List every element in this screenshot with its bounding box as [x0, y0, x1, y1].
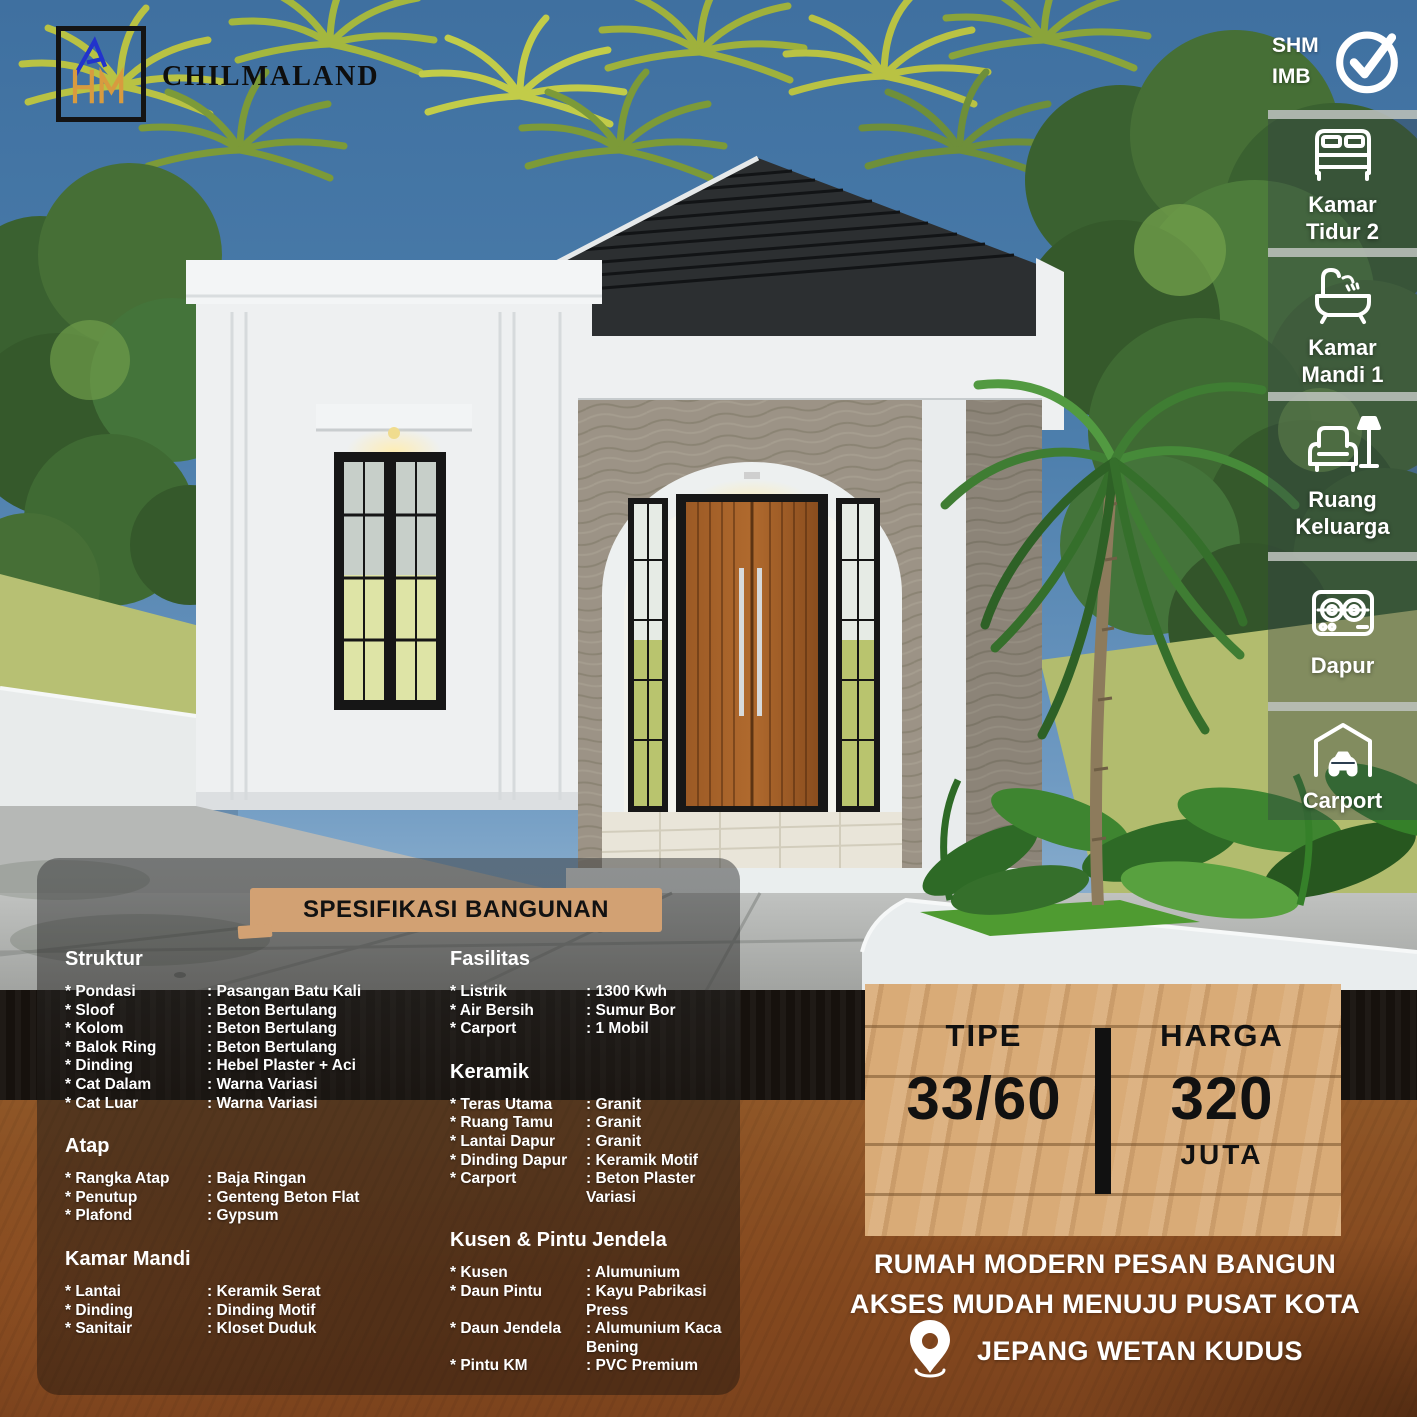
label-line: Dapur: [1311, 652, 1375, 679]
spec-label: * Daun Pintu: [450, 1283, 586, 1320]
sidebar-item-kamar-mandi: Kamar Mandi 1: [1268, 248, 1417, 392]
spec-value: : Beton Bertulang: [207, 1020, 415, 1039]
spec-section-kamar-mandi: Kamar Mandi * Lantai: Keramik Serat* Din…: [65, 1248, 415, 1339]
spec-label: * Kolom: [65, 1020, 207, 1039]
spec-label: * Pondasi: [65, 983, 207, 1002]
location-name: JEPANG WETAN KUDUS: [977, 1336, 1303, 1367]
spec-row: * Cat Luar: Warna Variasi: [65, 1095, 415, 1114]
spec-row: * Daun Jendela: Alumunium Kaca Bening: [450, 1320, 722, 1357]
spec-label: * Pintu KM: [450, 1357, 586, 1376]
spec-label: * Dinding: [65, 1057, 207, 1076]
spec-row: * Balok Ring: Beton Bertulang: [65, 1039, 415, 1058]
spec-value: : Warna Variasi: [207, 1076, 415, 1095]
spec-section-struktur: Struktur * Pondasi: Pasangan Batu Kali* …: [65, 948, 415, 1113]
spec-value: : Kayu Pabrikasi Press: [586, 1283, 722, 1320]
price-value: 320: [1170, 1064, 1273, 1133]
price-unit: JUTA: [1180, 1139, 1263, 1171]
spec-title: SPESIFIKASI BANGUNAN: [303, 896, 609, 924]
spec-value: : Granit: [586, 1114, 722, 1133]
label-line: Tidur 2: [1306, 218, 1379, 245]
sidebar-item-carport: Carport: [1268, 702, 1417, 820]
spec-label: * Sanitair: [65, 1320, 207, 1339]
spec-section-keramik: Keramik * Teras Utama: Granit* Ruang Tam…: [450, 1061, 722, 1208]
spec-row: * Kolom: Beton Bertulang: [65, 1020, 415, 1039]
price-sign: TIPE 33/60 HARGA 320 JUTA: [865, 984, 1341, 1236]
spec-value: : Granit: [586, 1133, 722, 1152]
spec-value: : Sumur Bor: [586, 1002, 722, 1021]
label-line: Kamar: [1306, 191, 1379, 218]
spec-value: : Beton Plaster Variasi: [586, 1170, 722, 1207]
spec-row: * Plafond: Gypsum: [65, 1207, 415, 1226]
spec-label: * Lantai Dapur: [450, 1133, 586, 1152]
spec-section-atap: Atap * Rangka Atap: Baja Ringan* Penutup…: [65, 1135, 415, 1226]
spec-label: * Lantai: [65, 1283, 207, 1302]
spec-label: * Cat Dalam: [65, 1076, 207, 1095]
sofa-lamp-icon: [1305, 414, 1381, 478]
tagline: RUMAH MODERN PESAN BANGUN AKSES MUDAH ME…: [845, 1244, 1365, 1324]
sign-divider: [1095, 1028, 1111, 1194]
spec-value: : Genteng Beton Flat: [207, 1189, 415, 1208]
price-block: HARGA 320 JUTA: [1103, 984, 1341, 1236]
label-line: Carport: [1303, 787, 1382, 814]
label-line: Ruang: [1295, 486, 1389, 513]
spec-value: : Beton Bertulang: [207, 1039, 415, 1058]
label-line: Mandi 1: [1302, 361, 1384, 388]
spec-row: * Sloof: Beton Bertulang: [65, 1002, 415, 1021]
spec-label: * Sloof: [65, 1002, 207, 1021]
spec-value: : Hebel Plaster + Aci: [207, 1057, 415, 1076]
spec-value: : Dinding Motif: [207, 1302, 415, 1321]
spec-value: : Kloset Duduk: [207, 1320, 415, 1339]
type-value: 33/60: [906, 1064, 1061, 1133]
spec-column-right: Fasilitas * Listrik: 1300 Kwh* Air Bersi…: [450, 942, 722, 1376]
left-wing: [186, 260, 602, 810]
spec-value: : Beton Bertulang: [207, 1002, 415, 1021]
label-line: Keluarga: [1295, 513, 1389, 540]
spec-row: * Sanitair: Kloset Duduk: [65, 1320, 415, 1339]
brand-header: CHILMALAND: [56, 26, 380, 122]
spec-value: : Gypsum: [207, 1207, 415, 1226]
spec-label: * Air Bersih: [450, 1002, 586, 1021]
spec-value: : Pasangan Batu Kali: [207, 983, 415, 1002]
pin-icon: [907, 1318, 953, 1385]
check-icon: [1329, 22, 1405, 103]
spec-value: : Keramik Motif: [586, 1152, 722, 1171]
spec-row: * Ruang Tamu: Granit: [450, 1114, 722, 1133]
spec-label: * Carport: [450, 1020, 586, 1039]
spec-row: * Carport: 1 Mobil: [450, 1020, 722, 1039]
cert-badge: SHM IMB: [1272, 22, 1405, 103]
spec-row: * Carport: Beton Plaster Variasi: [450, 1170, 722, 1207]
carport-icon: [1308, 717, 1378, 779]
spec-label: * Rangka Atap: [65, 1170, 207, 1189]
entrance: [566, 336, 1052, 906]
spec-label: * Dinding Dapur: [450, 1152, 586, 1171]
sidelight-left: [628, 498, 668, 812]
brand-name: CHILMALAND: [162, 61, 380, 93]
spec-row: * Kusen: Alumunium: [450, 1264, 722, 1283]
feature-sidebar: Kamar Tidur 2 Kamar Mandi 1: [1268, 110, 1417, 820]
spec-value: : Baja Ringan: [207, 1170, 415, 1189]
spec-section-heading: Fasilitas: [450, 948, 722, 971]
spec-value: : Alumunium Kaca Bening: [586, 1320, 722, 1357]
spec-row: * Listrik: 1300 Kwh: [450, 983, 722, 1002]
cert-line: IMB: [1272, 61, 1319, 92]
door-handle: [757, 568, 762, 716]
location-row: JEPANG WETAN KUDUS: [845, 1318, 1365, 1385]
spec-value: : Granit: [586, 1096, 722, 1115]
cert-line: SHM: [1272, 30, 1319, 61]
spec-value: : Alumunium: [586, 1264, 722, 1283]
bed-icon: [1309, 123, 1377, 183]
tagline-line1: RUMAH MODERN PESAN BANGUN: [845, 1244, 1365, 1284]
spec-label: * Plafond: [65, 1207, 207, 1226]
sidebar-item-label: Ruang Keluarga: [1295, 486, 1389, 540]
sidebar-item-ruang-keluarga: Ruang Keluarga: [1268, 392, 1417, 552]
sidebar-item-kamar-tidur: Kamar Tidur 2: [1268, 110, 1417, 248]
stove-icon: [1308, 584, 1378, 644]
spec-row: * Lantai: Keramik Serat: [65, 1283, 415, 1302]
spec-row: * Air Bersih: Sumur Bor: [450, 1002, 722, 1021]
spec-row: * Lantai Dapur: Granit: [450, 1133, 722, 1152]
spec-row: * Teras Utama: Granit: [450, 1096, 722, 1115]
sidebar-item-label: Dapur: [1311, 652, 1375, 679]
spec-label: * Penutup: [65, 1189, 207, 1208]
spec-section-heading: Kamar Mandi: [65, 1248, 415, 1271]
type-label: TIPE: [946, 1018, 1023, 1054]
sidelight-right: [836, 498, 880, 812]
spec-section-fasilitas: Fasilitas * Listrik: 1300 Kwh* Air Bersi…: [450, 948, 722, 1039]
spec-row: * Pondasi: Pasangan Batu Kali: [65, 983, 415, 1002]
sidebar-item-dapur: Dapur: [1268, 552, 1417, 702]
spec-label: * Cat Luar: [65, 1095, 207, 1114]
property-flyer: CHILMALAND SHM IMB Kamar: [0, 0, 1417, 1417]
spec-banner: SPESIFIKASI BANGUNAN: [250, 888, 662, 932]
sidebar-item-label: Kamar Tidur 2: [1306, 191, 1379, 245]
spec-panel: SPESIFIKASI BANGUNAN Struktur * Pondasi:…: [37, 858, 740, 1395]
spec-label: * Dinding: [65, 1302, 207, 1321]
spec-row: * Penutup: Genteng Beton Flat: [65, 1189, 415, 1208]
spec-value: : Warna Variasi: [207, 1095, 415, 1114]
chilmaland-monogram-icon: [56, 26, 146, 122]
window-ledge-lamp: [316, 404, 472, 430]
spec-value: : 1 Mobil: [586, 1020, 722, 1039]
spec-label: * Balok Ring: [65, 1039, 207, 1058]
spec-row: * Dinding Dapur: Keramik Motif: [450, 1152, 722, 1171]
spec-value: : 1300 Kwh: [586, 983, 722, 1002]
spec-section-heading: Keramik: [450, 1061, 722, 1084]
spec-row: * Dinding: Dinding Motif: [65, 1302, 415, 1321]
spec-section-kusen: Kusen & Pintu Jendela * Kusen: Alumunium…: [450, 1229, 722, 1376]
spec-column-left: Struktur * Pondasi: Pasangan Batu Kali* …: [65, 942, 415, 1376]
spec-row: * Rangka Atap: Baja Ringan: [65, 1170, 415, 1189]
spec-value: : PVC Premium: [586, 1357, 722, 1376]
spec-label: * Daun Jendela: [450, 1320, 586, 1357]
spec-label: * Listrik: [450, 983, 586, 1002]
price-label: HARGA: [1160, 1018, 1284, 1054]
spec-section-heading: Kusen & Pintu Jendela: [450, 1229, 722, 1252]
door-handle: [739, 568, 744, 716]
label-line: Kamar: [1302, 334, 1384, 361]
spec-section-heading: Struktur: [65, 948, 415, 971]
spec-label: * Kusen: [450, 1264, 586, 1283]
spec-label: * Carport: [450, 1170, 586, 1207]
spec-row: * Daun Pintu: Kayu Pabrikasi Press: [450, 1283, 722, 1320]
spec-label: * Teras Utama: [450, 1096, 586, 1115]
sidebar-item-label: Carport: [1303, 787, 1382, 814]
front-window: [334, 452, 446, 710]
spec-row: * Dinding: Hebel Plaster + Aci: [65, 1057, 415, 1076]
spec-value: : Keramik Serat: [207, 1283, 415, 1302]
spec-section-heading: Atap: [65, 1135, 415, 1158]
bathtub-icon: [1309, 262, 1377, 326]
front-door: [676, 494, 828, 812]
sidebar-item-label: Kamar Mandi 1: [1302, 334, 1384, 388]
spec-row: * Cat Dalam: Warna Variasi: [65, 1076, 415, 1095]
spec-label: * Ruang Tamu: [450, 1114, 586, 1133]
spec-row: * Pintu KM: PVC Premium: [450, 1357, 722, 1376]
type-block: TIPE 33/60: [865, 984, 1103, 1236]
